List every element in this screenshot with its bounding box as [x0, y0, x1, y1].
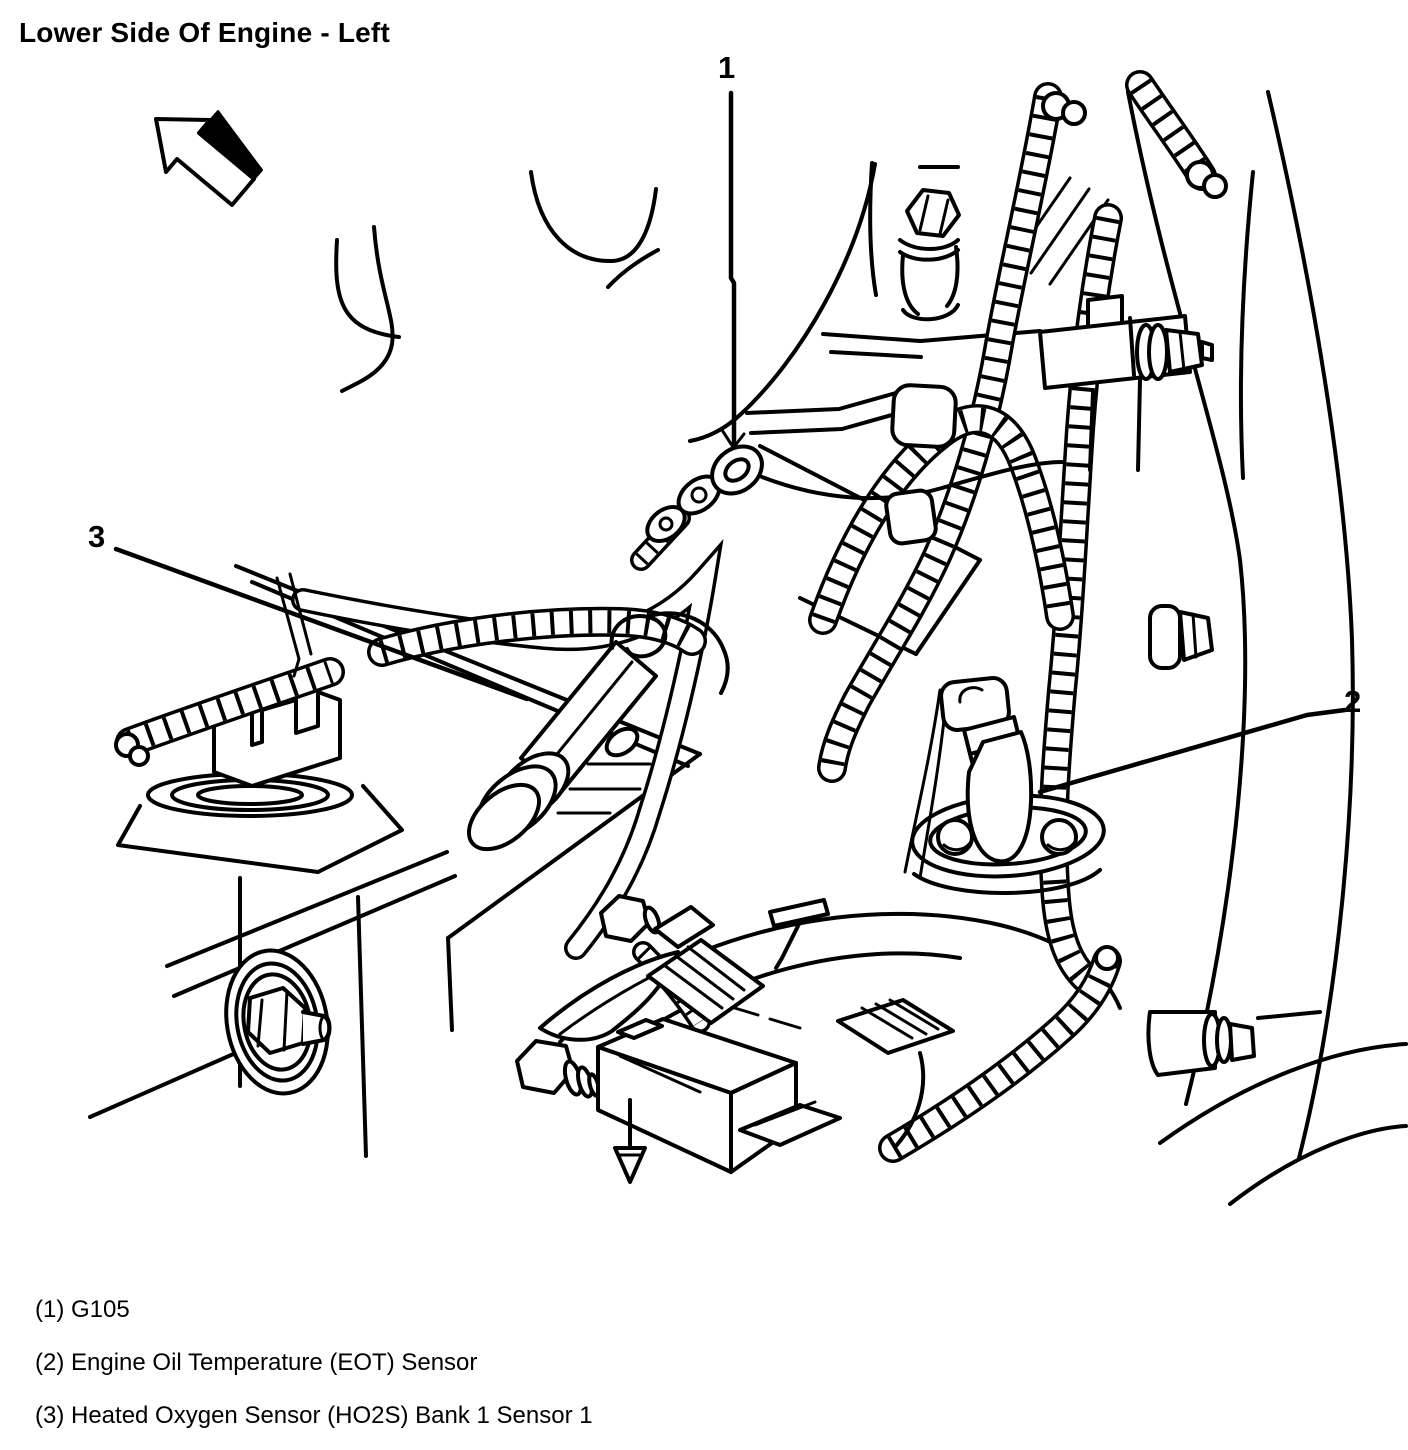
legend: (1) G105 (2) Engine Oil Temperature (EOT… [35, 1296, 593, 1450]
engine-block-details [277, 384, 957, 813]
legend-item-3: (3) Heated Oxygen Sensor (HO2S) Bank 1 S… [35, 1402, 593, 1450]
callout-1-number: 1 [718, 52, 735, 83]
engine-diagram-page: Lower Side Of Engine - Left 1 2 3 (1) G1… [0, 0, 1408, 1450]
callout-3-number: 3 [88, 521, 105, 552]
lower-right-conduit [893, 947, 1118, 1148]
top-conduit-stub [1140, 85, 1226, 197]
upper-bolt [900, 190, 959, 319]
lower-right-bolt [1148, 1012, 1320, 1075]
legend-item-2: (2) Engine Oil Temperature (EOT) Sensor [35, 1349, 593, 1402]
page-title: Lower Side Of Engine - Left [19, 17, 390, 49]
orientation-arrow-icon [156, 111, 262, 205]
callout-1-leader [731, 93, 734, 446]
eot-sensor [905, 677, 1107, 893]
engine-line-art [0, 0, 1408, 1450]
callout-2-leader [1040, 710, 1345, 792]
callout-2-number: 2 [1344, 686, 1361, 717]
legend-item-1: (1) G105 [35, 1296, 593, 1349]
